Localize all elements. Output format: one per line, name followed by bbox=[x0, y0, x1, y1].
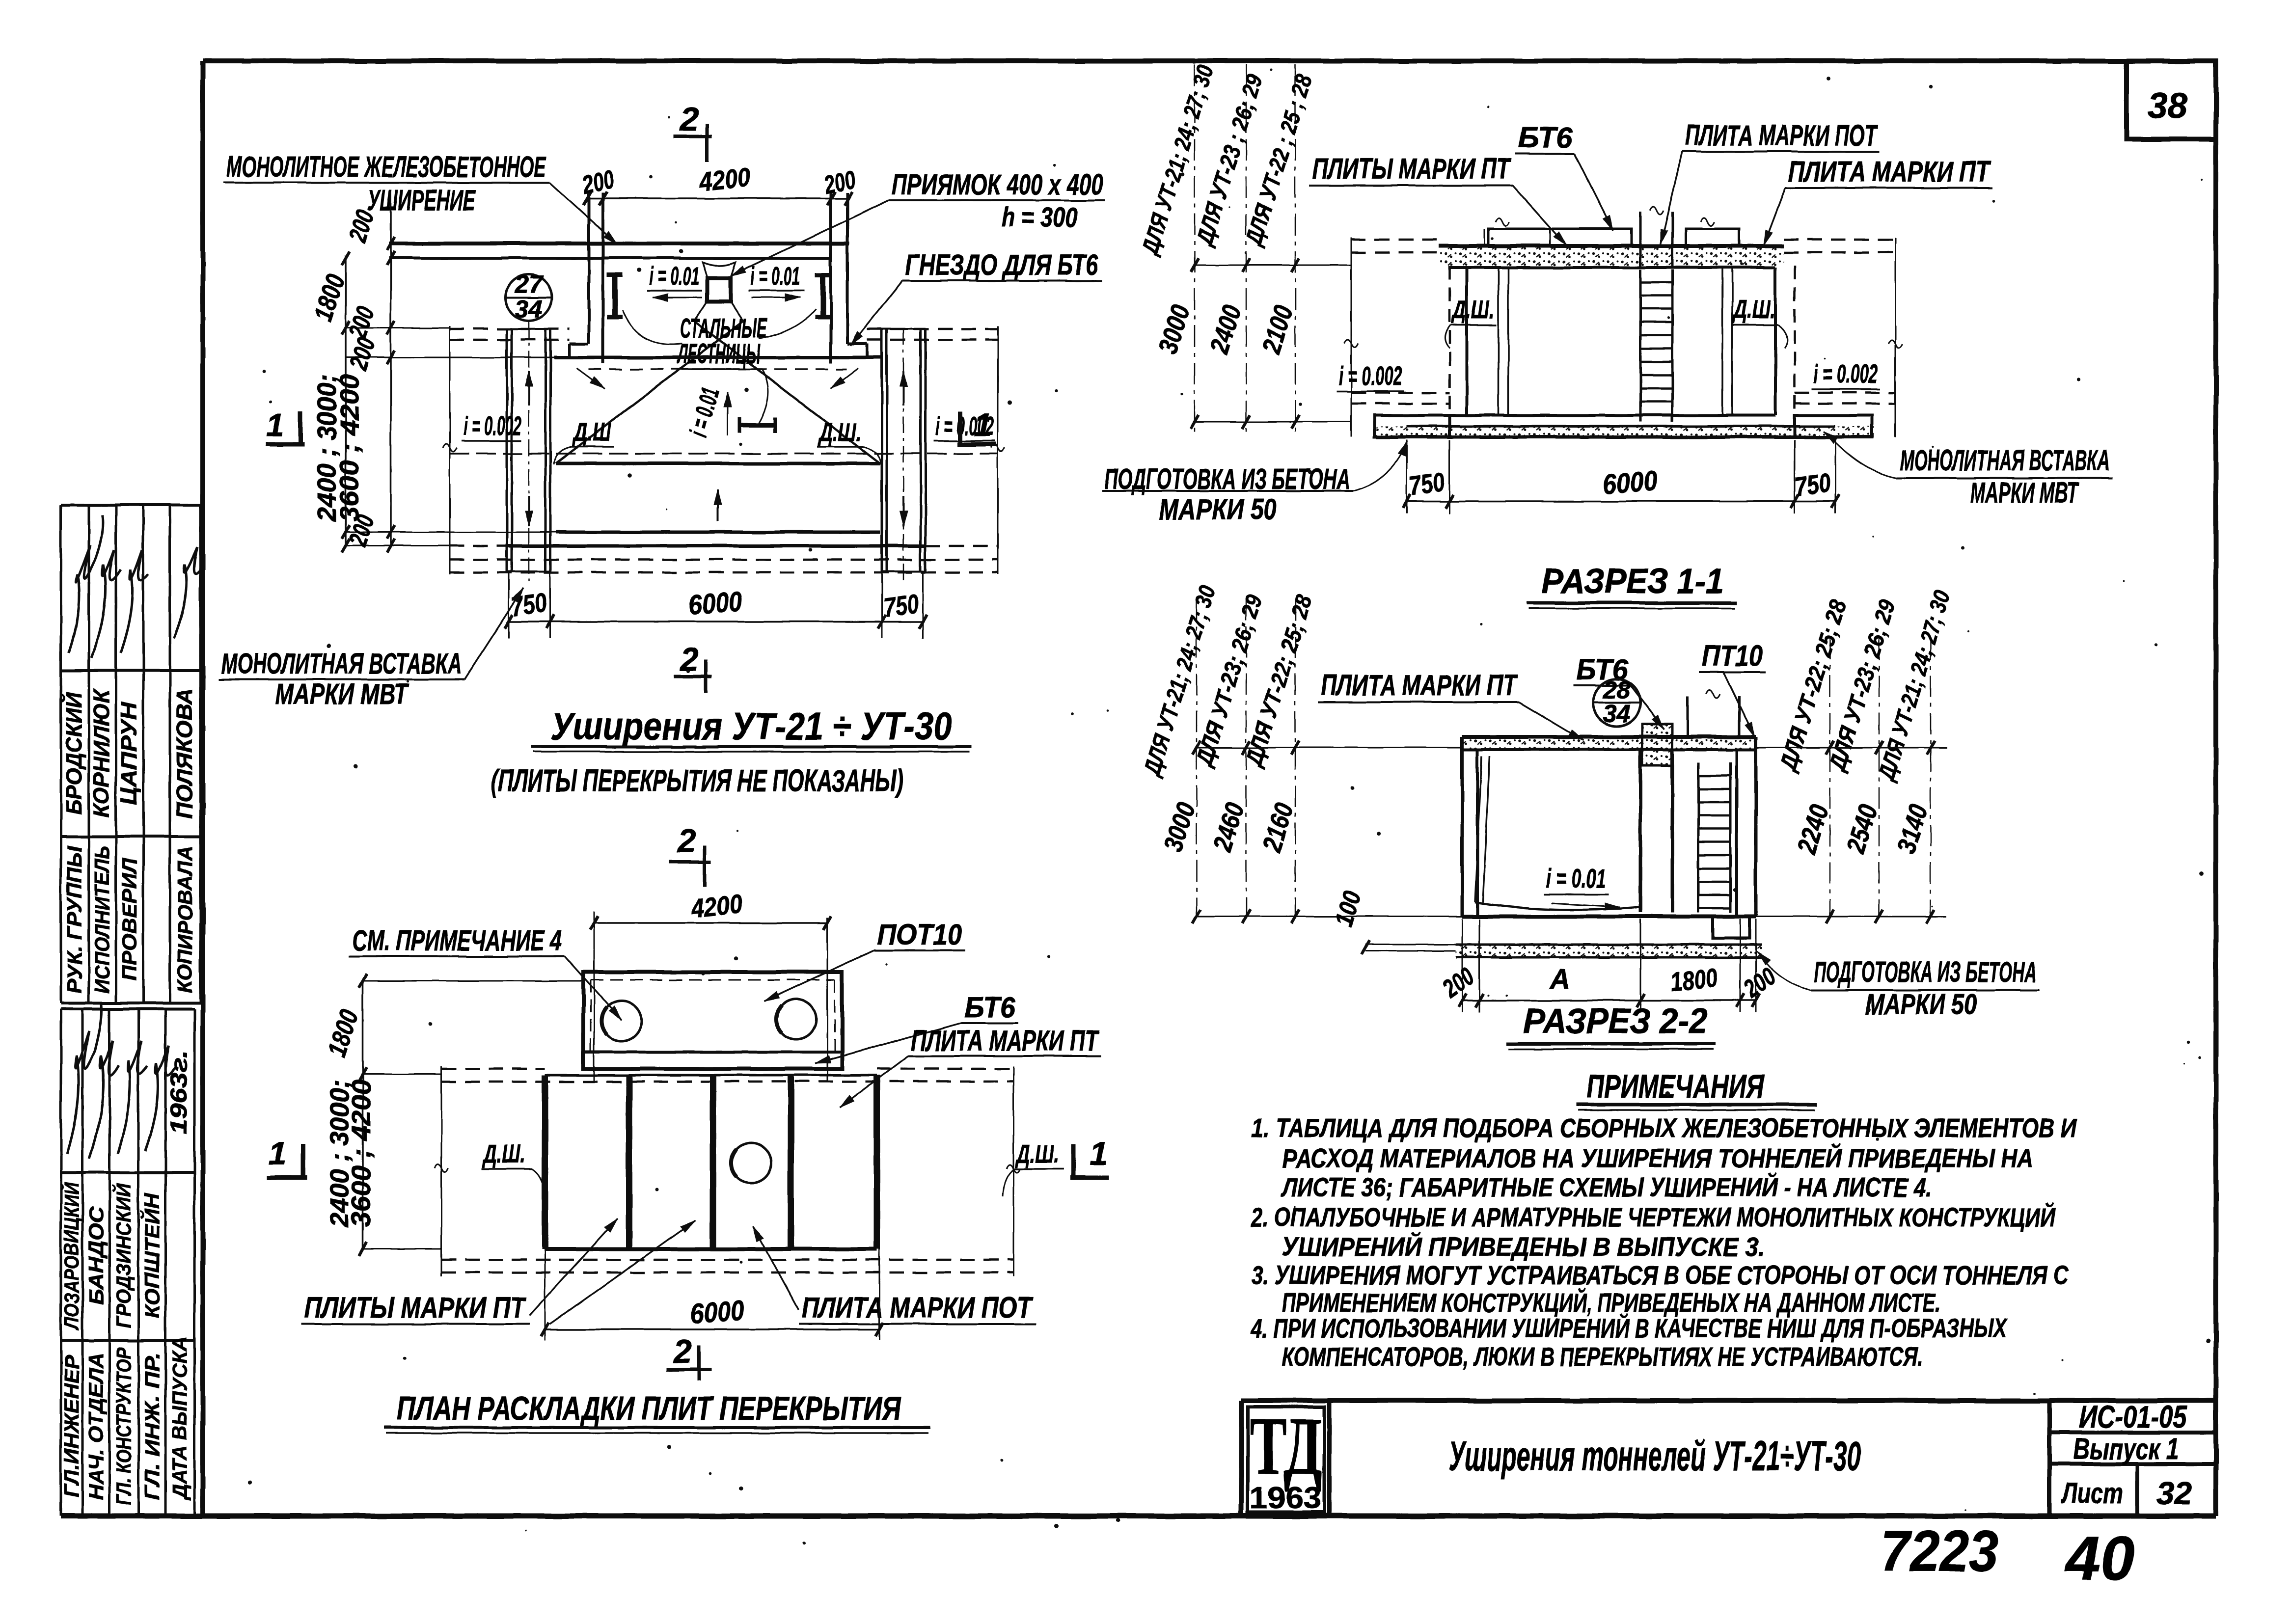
svg-text:ГЛ. КОНСТРУКТОР: ГЛ. КОНСТРУКТОР bbox=[112, 1347, 135, 1505]
svg-text:1963г.: 1963г. bbox=[165, 1051, 191, 1134]
svg-text:ПЛИТЫ МАРКИ ПТ: ПЛИТЫ МАРКИ ПТ bbox=[304, 1292, 527, 1324]
svg-text:Д.Ш.: Д.Ш. bbox=[1732, 296, 1775, 324]
svg-text:200: 200 bbox=[579, 165, 616, 199]
svg-text:4. ПРИ ИСПОЛЬЗОВАНИИ УШИРЕНИЙ: 4. ПРИ ИСПОЛЬЗОВАНИИ УШИРЕНИЙ В КАЧЕСТВЕ… bbox=[1251, 1313, 2008, 1343]
svg-text:ПЛИТА МАРКИ ПТ: ПЛИТА МАРКИ ПТ bbox=[1321, 669, 1518, 702]
svg-text:Д.Ш: Д.Ш bbox=[572, 418, 611, 447]
svg-text:1: 1 bbox=[974, 406, 992, 443]
svg-text:200: 200 bbox=[344, 334, 381, 374]
svg-text:ПОЛЯКОВА: ПОЛЯКОВА bbox=[172, 689, 197, 819]
svg-text:РАСХОД МАТЕРИАЛОВ НА УШИРЕНИЯ: РАСХОД МАТЕРИАЛОВ НА УШИРЕНИЯ ТОННЕЛЕЙ П… bbox=[1282, 1143, 2033, 1173]
svg-text:4200: 4200 bbox=[689, 889, 744, 924]
svg-text:1800: 1800 bbox=[322, 1006, 365, 1060]
svg-text:ГНЕЗДО ДЛЯ БТ6: ГНЕЗДО ДЛЯ БТ6 bbox=[905, 249, 1098, 281]
svg-text:ПРИМЕЧАНИЯ: ПРИМЕЧАНИЯ bbox=[1586, 1068, 1765, 1105]
svg-text:1: 1 bbox=[269, 1135, 287, 1171]
svg-text:1963: 1963 bbox=[1250, 1481, 1321, 1515]
svg-text:ПРИЯМОК 400 x 400: ПРИЯМОК 400 x 400 bbox=[892, 168, 1103, 201]
svg-text:3. УШИРЕНИЯ МОГУТ УСТРАИВАТЬСЯ: 3. УШИРЕНИЯ МОГУТ УСТРАИВАТЬСЯ В ОБЕ СТО… bbox=[1251, 1261, 2069, 1290]
svg-text:ПРОВЕРИЛ: ПРОВЕРИЛ bbox=[118, 858, 141, 981]
svg-text:1: 1 bbox=[266, 406, 284, 443]
svg-text:3000: 3000 bbox=[1153, 301, 1196, 357]
svg-text:ПЛИТА МАРКИ ПТ: ПЛИТА МАРКИ ПТ bbox=[911, 1025, 1100, 1057]
svg-text:(ПЛИТЫ ПЕРЕКРЫТИЯ НЕ ПОКАЗАНЫ): (ПЛИТЫ ПЕРЕКРЫТИЯ НЕ ПОКАЗАНЫ) bbox=[491, 763, 903, 798]
svg-text:2540: 2540 bbox=[1841, 801, 1883, 857]
svg-text:ПЛИТА МАРКИ ПОТ: ПЛИТА МАРКИ ПОТ bbox=[802, 1292, 1034, 1324]
svg-text:2460: 2460 bbox=[1207, 799, 1250, 855]
svg-text:ДАТА ВЫПУСКА: ДАТА ВЫПУСКА bbox=[168, 1337, 191, 1500]
svg-text:3600 ; 4200: 3600 ; 4200 bbox=[335, 374, 364, 521]
svg-text:200: 200 bbox=[1437, 962, 1479, 1004]
svg-text:i = 0.01: i = 0.01 bbox=[649, 262, 699, 291]
svg-text:Лист: Лист bbox=[2060, 1477, 2123, 1510]
svg-text:3600 ; 4200: 3600 ; 4200 bbox=[347, 1080, 376, 1227]
svg-text:6000: 6000 bbox=[689, 1295, 745, 1330]
svg-text:Д.Ш.: Д.Ш. bbox=[1015, 1140, 1059, 1168]
svg-text:1800: 1800 bbox=[1669, 963, 1719, 997]
svg-text:6000: 6000 bbox=[687, 586, 743, 621]
svg-text:СМ. ПРИМЕЧАНИЕ 4: СМ. ПРИМЕЧАНИЕ 4 bbox=[352, 924, 562, 957]
svg-text:ПЛИТЫ МАРКИ ПТ: ПЛИТЫ МАРКИ ПТ bbox=[1312, 153, 1512, 185]
svg-text:ПОТ10: ПОТ10 bbox=[877, 919, 962, 951]
svg-text:ИС-01-05: ИС-01-05 bbox=[2079, 1399, 2187, 1435]
svg-text:7223: 7223 bbox=[1881, 1519, 1998, 1584]
svg-text:h = 300: h = 300 bbox=[1002, 202, 1078, 233]
svg-text:40: 40 bbox=[2064, 1523, 2134, 1593]
svg-text:КОМПЕНСАТОРОВ, ЛЮКИ В ПЕРЕКРЫТ: КОМПЕНСАТОРОВ, ЛЮКИ В ПЕРЕКРЫТИЯХ НЕ УСТ… bbox=[1282, 1342, 1923, 1372]
svg-text:Уширения УТ-21 ÷ УТ-30: Уширения УТ-21 ÷ УТ-30 bbox=[551, 704, 952, 748]
svg-text:РУК. ГРУППЫ: РУК. ГРУППЫ bbox=[63, 845, 86, 993]
svg-text:2. ОПАЛУБОЧНЫЕ И АРМАТУРНЫЕ ЧЕ: 2. ОПАЛУБОЧНЫЕ И АРМАТУРНЫЕ ЧЕРТЕЖИ МОНО… bbox=[1251, 1202, 2056, 1232]
svg-text:МОНОЛИТНАЯ ВСТАВКА: МОНОЛИТНАЯ ВСТАВКА bbox=[221, 648, 462, 680]
svg-text:НАЧ. ОТДЕЛА: НАЧ. ОТДЕЛА bbox=[84, 1353, 108, 1500]
svg-text:МАРКИ 50: МАРКИ 50 bbox=[1159, 493, 1277, 526]
svg-text:34: 34 bbox=[1603, 700, 1631, 727]
svg-text:2: 2 bbox=[676, 822, 696, 860]
svg-text:i = 0.002: i = 0.002 bbox=[1338, 361, 1402, 391]
svg-text:4200: 4200 bbox=[697, 162, 752, 197]
svg-text:1800: 1800 bbox=[308, 271, 351, 325]
svg-text:БТ6: БТ6 bbox=[1518, 121, 1573, 154]
svg-text:Д.Ш.: Д.Ш. bbox=[1451, 296, 1495, 324]
svg-text:2: 2 bbox=[679, 101, 699, 138]
svg-text:Выпуск 1: Выпуск 1 bbox=[2073, 1432, 2179, 1465]
svg-text:i = 0.01: i = 0.01 bbox=[1546, 864, 1606, 893]
svg-text:ПТ10: ПТ10 bbox=[1702, 640, 1763, 672]
svg-text:i = 0.002: i = 0.002 bbox=[1814, 359, 1878, 389]
svg-text:МОНОЛИТНОЕ ЖЕЛЕЗОБЕТОННОЕ: МОНОЛИТНОЕ ЖЕЛЕЗОБЕТОННОЕ bbox=[227, 151, 546, 183]
svg-text:КОПШТЕЙН: КОПШТЕЙН bbox=[139, 1192, 164, 1319]
svg-text:2100: 2100 bbox=[1256, 301, 1299, 357]
svg-text:1: 1 bbox=[1090, 1135, 1108, 1171]
svg-text:ИСПОЛНИТЕЛЬ: ИСПОЛНИТЕЛЬ bbox=[90, 846, 113, 993]
svg-text:БРОДСКИЙ: БРОДСКИЙ bbox=[61, 691, 86, 815]
svg-text:ЦАПРУН: ЦАПРУН bbox=[116, 701, 141, 805]
svg-text:750: 750 bbox=[1408, 467, 1447, 501]
svg-text:ЛЕСТНИЦЫ: ЛЕСТНИЦЫ bbox=[677, 338, 761, 370]
svg-text:РАЗРЕЗ 1-1: РАЗРЕЗ 1-1 bbox=[1542, 562, 1724, 601]
svg-text:ГЛ.ИНЖЕНЕР: ГЛ.ИНЖЕНЕР bbox=[60, 1354, 83, 1497]
svg-text:32: 32 bbox=[2156, 1476, 2191, 1511]
svg-text:МАРКИ МВТ: МАРКИ МВТ bbox=[1970, 477, 2079, 509]
svg-text:200: 200 bbox=[343, 303, 380, 342]
svg-text:ПЛИТА МАРКИ ПОТ: ПЛИТА МАРКИ ПОТ bbox=[1685, 119, 1878, 152]
svg-text:ПЛАН РАСКЛАДКИ ПЛИТ ПЕРЕКРЫТИЯ: ПЛАН РАСКЛАДКИ ПЛИТ ПЕРЕКРЫТИЯ bbox=[397, 1390, 901, 1427]
svg-text:УШИРЕНИЕ: УШИРЕНИЕ bbox=[367, 184, 476, 217]
svg-text:ГЛ. ИНЖ. ПР.: ГЛ. ИНЖ. ПР. bbox=[140, 1353, 164, 1500]
svg-text:i = 0.002: i = 0.002 bbox=[464, 411, 521, 441]
svg-text:МОНОЛИТНАЯ ВСТАВКА: МОНОЛИТНАЯ ВСТАВКА bbox=[1900, 444, 2110, 477]
svg-text:2160: 2160 bbox=[1256, 799, 1299, 855]
svg-text:УШИРЕНИЙ ПРИВЕДЕНЫ В ВЫПУСКЕ 3: УШИРЕНИЙ ПРИВЕДЕНЫ В ВЫПУСКЕ 3. bbox=[1282, 1231, 1765, 1262]
svg-text:ЛИСТЕ 36; ГАБАРИТНЫЕ СХЕМЫ УШИ: ЛИСТЕ 36; ГАБАРИТНЫЕ СХЕМЫ УШИРЕНИЙ - НА… bbox=[1281, 1172, 1932, 1202]
svg-text:38: 38 bbox=[2148, 86, 2188, 126]
svg-text:ПРИМЕНЕНИЕМ КОНСТРУКЦИЙ, ПРИВЕ: ПРИМЕНЕНИЕМ КОНСТРУКЦИЙ, ПРИВЕДЕНЫХ НА Д… bbox=[1282, 1287, 1941, 1318]
svg-text:МАРКИ 50: МАРКИ 50 bbox=[1865, 988, 1977, 1021]
svg-text:ПЛИТА МАРКИ ПТ: ПЛИТА МАРКИ ПТ bbox=[1788, 156, 1991, 188]
svg-text:МАРКИ МВТ: МАРКИ МВТ bbox=[275, 678, 409, 710]
svg-text:ПОДГОТОВКА ИЗ БЕТОНА: ПОДГОТОВКА ИЗ БЕТОНА bbox=[1814, 956, 2037, 988]
svg-text:ТД: ТД bbox=[1250, 1401, 1322, 1492]
svg-text:750: 750 bbox=[1793, 468, 1832, 502]
svg-text:А: А bbox=[1549, 964, 1570, 995]
svg-text:27: 27 bbox=[515, 271, 544, 298]
svg-text:2400: 2400 bbox=[1204, 301, 1247, 357]
svg-text:КОРНИЛЮК: КОРНИЛЮК bbox=[89, 688, 114, 817]
svg-text:34: 34 bbox=[515, 295, 543, 323]
svg-text:2: 2 bbox=[672, 1333, 692, 1370]
svg-text:3140: 3140 bbox=[1891, 801, 1934, 857]
svg-text:БТ6: БТ6 bbox=[964, 991, 1016, 1024]
svg-text:РАЗРЕЗ 2-2: РАЗРЕЗ 2-2 bbox=[1523, 1002, 1707, 1041]
svg-text:Д.Ш.: Д.Ш. bbox=[818, 418, 861, 447]
svg-text:i = 0.01: i = 0.01 bbox=[750, 262, 800, 291]
svg-text:Д.Ш.: Д.Ш. bbox=[482, 1140, 525, 1168]
svg-text:750: 750 bbox=[510, 588, 549, 622]
svg-text:3000: 3000 bbox=[1158, 799, 1201, 855]
svg-text:ГРОДЗИНСКИЙ: ГРОДЗИНСКИЙ bbox=[111, 1183, 135, 1328]
svg-text:ЛОЗАРОВИЦКИЙ: ЛОЗАРОВИЦКИЙ bbox=[59, 1182, 83, 1330]
svg-text:БАНДОС: БАНДОС bbox=[84, 1206, 108, 1305]
svg-text:100: 100 bbox=[1329, 888, 1367, 930]
svg-text:6000: 6000 bbox=[1602, 465, 1658, 500]
svg-text:750: 750 bbox=[882, 589, 921, 623]
svg-text:200: 200 bbox=[821, 165, 858, 199]
svg-text:КОПИРОВАЛА: КОПИРОВАЛА bbox=[173, 846, 196, 993]
svg-text:1. ТАБЛИЦА ДЛЯ ПОДБОРА СБОРНЫХ: 1. ТАБЛИЦА ДЛЯ ПОДБОРА СБОРНЫХ ЖЕЛЕЗОБЕТ… bbox=[1251, 1113, 2077, 1143]
svg-text:200: 200 bbox=[1739, 962, 1781, 1004]
svg-text:2240: 2240 bbox=[1792, 801, 1834, 857]
svg-text:i = 0.01: i = 0.01 bbox=[684, 384, 725, 440]
svg-text:Уширения тоннелей УТ-21÷УТ-30: Уширения тоннелей УТ-21÷УТ-30 bbox=[1448, 1433, 1861, 1480]
